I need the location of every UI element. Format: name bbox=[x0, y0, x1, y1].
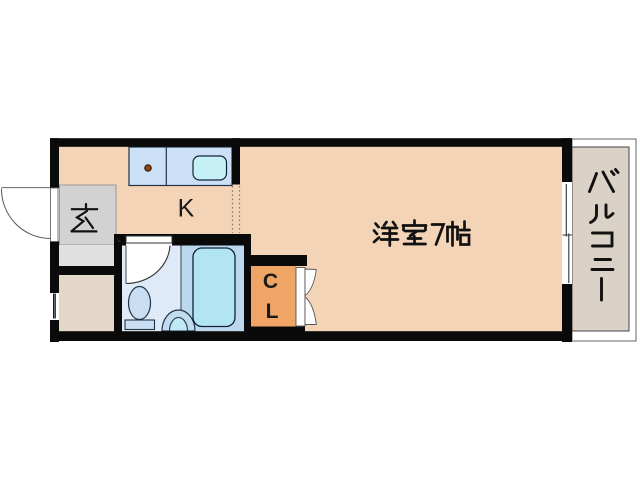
svg-text:K: K bbox=[178, 195, 195, 223]
svg-text:L: L bbox=[266, 300, 279, 323]
svg-text:C: C bbox=[263, 270, 278, 293]
